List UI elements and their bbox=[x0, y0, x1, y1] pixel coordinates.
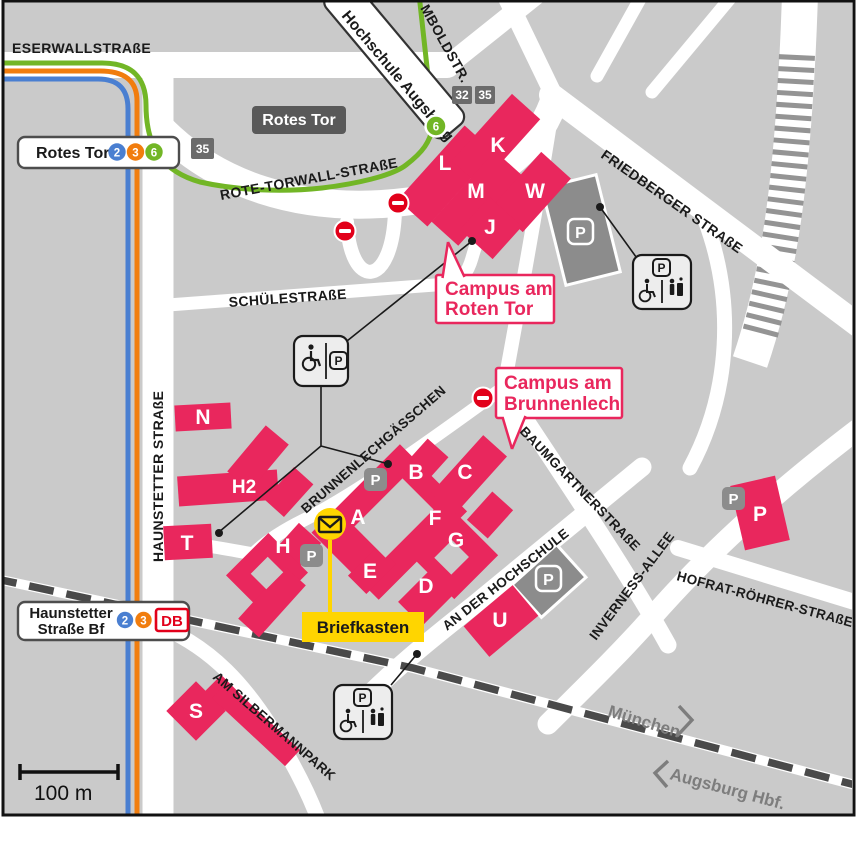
icon-box-schuelestrasse: P bbox=[294, 336, 348, 386]
haunstetter-bf-stop: Haunstetter Straße Bf 2 3 DB bbox=[18, 602, 189, 640]
building-label-S: S bbox=[189, 700, 203, 723]
bus-badge-35-label: 35 bbox=[478, 88, 492, 102]
line-6-label: 6 bbox=[151, 148, 157, 160]
parking-icon-label: P bbox=[575, 225, 586, 242]
building-label-A: A bbox=[350, 506, 365, 529]
parking-icon-label: P bbox=[334, 354, 342, 368]
parking-icon-label: P bbox=[543, 572, 554, 589]
building-label-F: F bbox=[429, 507, 442, 530]
campus-map: P P bbox=[0, 0, 864, 847]
dot-j bbox=[468, 237, 476, 245]
scale-label: 100 m bbox=[34, 782, 92, 805]
postbox-label: Briefkasten bbox=[317, 618, 410, 637]
dot-south bbox=[413, 650, 421, 658]
line-3-label: 3 bbox=[132, 148, 138, 160]
building-label-L: L bbox=[439, 152, 452, 175]
line-2-label: 2 bbox=[122, 616, 128, 628]
rotes-tor-sign-label: Rotes Tor bbox=[262, 112, 335, 129]
rotes-tor-sign: Rotes Tor bbox=[252, 106, 346, 134]
building-label-K: K bbox=[490, 134, 505, 157]
line-2-label: 2 bbox=[114, 148, 120, 160]
bus-badge-35-west-label: 35 bbox=[196, 142, 210, 156]
building-label-H2: H2 bbox=[232, 477, 256, 498]
building-label-D: D bbox=[418, 575, 433, 598]
bus-badge-32-label: 32 bbox=[455, 88, 469, 102]
street-label-eserwallstrasse: ESERWALLSTRAßE bbox=[12, 40, 151, 56]
dot-t bbox=[215, 529, 223, 537]
icon-box-friedberger: P bbox=[633, 255, 691, 309]
building-label-B: B bbox=[408, 461, 423, 484]
building-label-U: U bbox=[492, 609, 507, 632]
parking-icon-label: P bbox=[728, 491, 738, 508]
rotes-tor-stop: Rotes Tor 2 3 6 bbox=[18, 137, 179, 168]
parking-icon-label: P bbox=[306, 548, 316, 565]
stop-name-line1: Haunstetter bbox=[29, 605, 113, 622]
building-label-G: G bbox=[448, 529, 464, 552]
building-label-H: H bbox=[275, 535, 290, 558]
line-3-label: 3 bbox=[140, 616, 146, 628]
building-label-T: T bbox=[181, 532, 194, 555]
parking-icon-label: P bbox=[358, 691, 366, 705]
callout-roten-tor-line1: Campus am bbox=[445, 279, 553, 300]
dot-b bbox=[384, 460, 392, 468]
building-label-E: E bbox=[363, 560, 377, 583]
line-6-badge: 6 bbox=[433, 122, 439, 134]
building-label-P: P bbox=[753, 503, 767, 526]
callout-brunnenlech-line1: Campus am bbox=[504, 373, 612, 394]
icon-box-south: P bbox=[334, 685, 392, 739]
building-label-C: C bbox=[457, 461, 472, 484]
dot-lot bbox=[596, 203, 604, 211]
callout-roten-tor-line2: Roten Tor bbox=[445, 299, 534, 320]
stop-name-line2: Straße Bf bbox=[38, 621, 106, 638]
stop-name-rotes-tor: Rotes Tor bbox=[36, 145, 109, 162]
callout-brunnenlech-line2: Brunnenlech bbox=[504, 394, 620, 415]
parking-icon-label: P bbox=[370, 472, 380, 489]
street-label-haunstetter: HAUNSTETTER STRAßE bbox=[150, 391, 166, 562]
db-logo-label: DB bbox=[161, 613, 183, 630]
building-label-N: N bbox=[195, 406, 210, 429]
parking-icon-label: P bbox=[657, 261, 665, 275]
building-label-J: J bbox=[484, 216, 496, 239]
building-label-W: W bbox=[525, 180, 545, 203]
building-label-M: M bbox=[467, 180, 485, 203]
